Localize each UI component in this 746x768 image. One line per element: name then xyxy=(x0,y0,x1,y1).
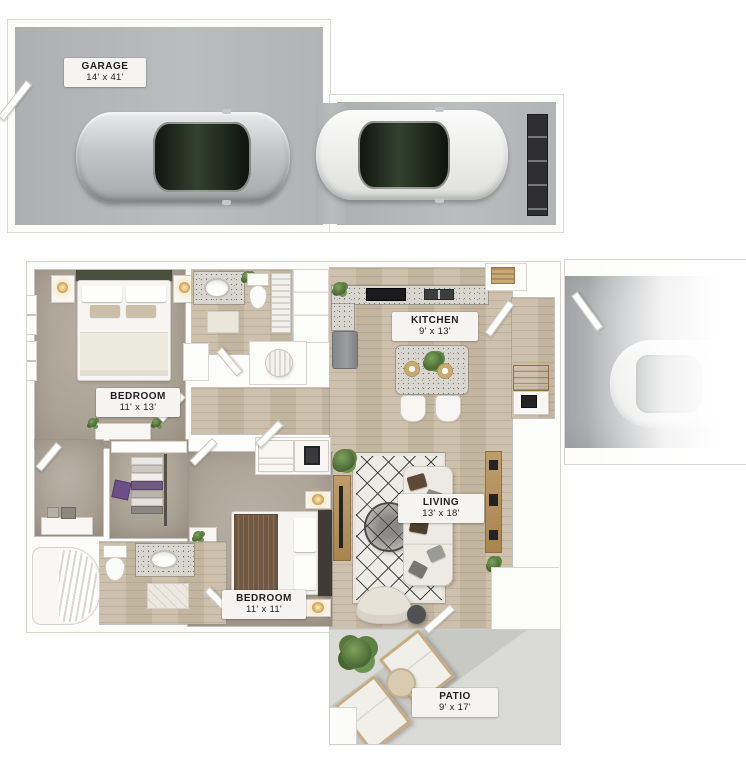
toilet-tank xyxy=(248,274,268,285)
throw-pillow xyxy=(408,560,428,579)
plant xyxy=(193,531,203,541)
car-mirror xyxy=(222,109,231,114)
room-name: BEDROOM xyxy=(104,391,172,402)
room-dims: 11' x 11' xyxy=(230,604,298,615)
room-name: PATIO xyxy=(420,691,490,702)
bath-mat xyxy=(208,312,238,332)
patio-section xyxy=(330,630,560,744)
decor-object xyxy=(489,530,498,540)
hanging-clothes xyxy=(132,491,162,497)
accent-pillow xyxy=(90,305,120,317)
window xyxy=(27,342,36,380)
linen-closet xyxy=(294,270,328,342)
picture-frame xyxy=(62,508,75,518)
room-name: BEDROOM xyxy=(230,593,298,604)
patio-plant xyxy=(342,638,372,668)
picture-frame xyxy=(48,508,58,517)
bar-stool xyxy=(401,396,425,421)
bathtub xyxy=(33,548,99,624)
bar-stool xyxy=(436,396,460,421)
car-white xyxy=(316,110,508,200)
wall-bump xyxy=(492,568,560,630)
laptop xyxy=(522,396,536,407)
laundry-basket xyxy=(266,350,292,376)
vanity-sink xyxy=(150,550,178,569)
kitchen-sink xyxy=(424,289,454,300)
room-label-bedroom2: BEDROOM 11' x 11' xyxy=(222,590,306,619)
kitchen-counter-left xyxy=(332,304,354,330)
room-name: KITCHEN xyxy=(400,315,470,326)
room-label-kitchen: KITCHEN 9' x 13' xyxy=(392,312,478,341)
garage-door xyxy=(527,114,548,216)
toilet-bowl xyxy=(106,558,124,580)
plant xyxy=(333,449,355,471)
pillow xyxy=(294,518,316,552)
hallway-floor xyxy=(192,388,332,434)
toilet xyxy=(104,546,126,580)
headboard xyxy=(76,270,172,281)
toilet-tank xyxy=(104,546,126,557)
toilet xyxy=(248,274,268,308)
car-glass-roof xyxy=(358,121,450,189)
hanging-clothes xyxy=(132,474,162,480)
pouf xyxy=(407,605,426,624)
place-setting xyxy=(405,362,419,376)
kitchen-counter xyxy=(332,286,488,304)
throw-pillow xyxy=(406,473,427,491)
room-dims: 9' x 17' xyxy=(420,702,490,713)
plant xyxy=(88,418,97,427)
room-label-garage: GARAGE 14' x 41' xyxy=(64,58,146,87)
car-mirror xyxy=(435,107,444,112)
hanging-clothes xyxy=(132,466,162,472)
decor-object xyxy=(489,494,498,506)
dryer-door xyxy=(304,446,320,465)
hanging-clothes xyxy=(132,499,162,505)
entry-bench xyxy=(514,366,548,390)
table-lamp xyxy=(312,494,324,505)
car-mirror xyxy=(435,198,444,203)
bath-mat xyxy=(148,584,188,608)
pillow xyxy=(82,286,122,302)
room-dims: 14' x 41' xyxy=(72,72,138,83)
pillow xyxy=(126,286,166,302)
washer xyxy=(259,441,293,471)
room-dims: 9' x 13' xyxy=(400,326,470,337)
toilet-bowl xyxy=(250,286,266,308)
car-glass-roof xyxy=(153,122,251,192)
cooktop xyxy=(366,288,406,301)
place-setting xyxy=(438,364,452,378)
closet-shelf xyxy=(112,442,186,452)
folded-blanket xyxy=(80,332,168,376)
patio-step xyxy=(330,708,356,744)
hanging-clothes xyxy=(132,458,162,464)
small-closet xyxy=(184,344,208,380)
hanging-clothes xyxy=(132,482,162,489)
vanity-sink xyxy=(204,278,230,298)
towel-cabinet xyxy=(272,274,290,332)
dresser xyxy=(96,424,150,440)
room-dims: 13' x 18' xyxy=(406,508,476,519)
tv xyxy=(339,486,343,548)
fade-overlay xyxy=(565,260,746,464)
refrigerator xyxy=(333,332,357,368)
room-name: GARAGE xyxy=(72,61,138,72)
pillow xyxy=(294,556,316,590)
room-label-living: LIVING 13' x 18' xyxy=(398,494,484,523)
blanket xyxy=(234,514,278,592)
car-mirror xyxy=(222,200,231,205)
side-table xyxy=(388,670,414,696)
master-bed xyxy=(76,270,172,380)
floorplan-scene: GARAGE 14' x 41' BEDROOM 11' x 13' xyxy=(0,0,746,768)
room-label-patio: PATIO 9' x 17' xyxy=(412,688,498,717)
headboard xyxy=(318,510,332,596)
plant xyxy=(333,282,346,295)
room-dims: 11' x 13' xyxy=(104,402,172,413)
sofa xyxy=(404,467,452,585)
closet-rod xyxy=(164,454,167,526)
room-label-bedroom1: BEDROOM 11' x 13' xyxy=(96,388,180,417)
bed2 xyxy=(232,510,332,596)
pantry-basket xyxy=(492,268,514,283)
decor-object xyxy=(489,460,498,470)
table-lamp xyxy=(57,282,68,293)
hanging-clothes xyxy=(132,507,162,513)
console-table xyxy=(42,518,92,534)
accent-pillow xyxy=(126,305,156,317)
window xyxy=(27,296,36,334)
car-silver xyxy=(76,112,290,202)
neighbor-garage-section xyxy=(565,260,746,464)
throw-pillow xyxy=(426,544,446,562)
table-lamp xyxy=(179,282,190,293)
table-lamp xyxy=(312,602,324,613)
shelf-unit xyxy=(486,452,501,552)
room-name: LIVING xyxy=(406,497,476,508)
